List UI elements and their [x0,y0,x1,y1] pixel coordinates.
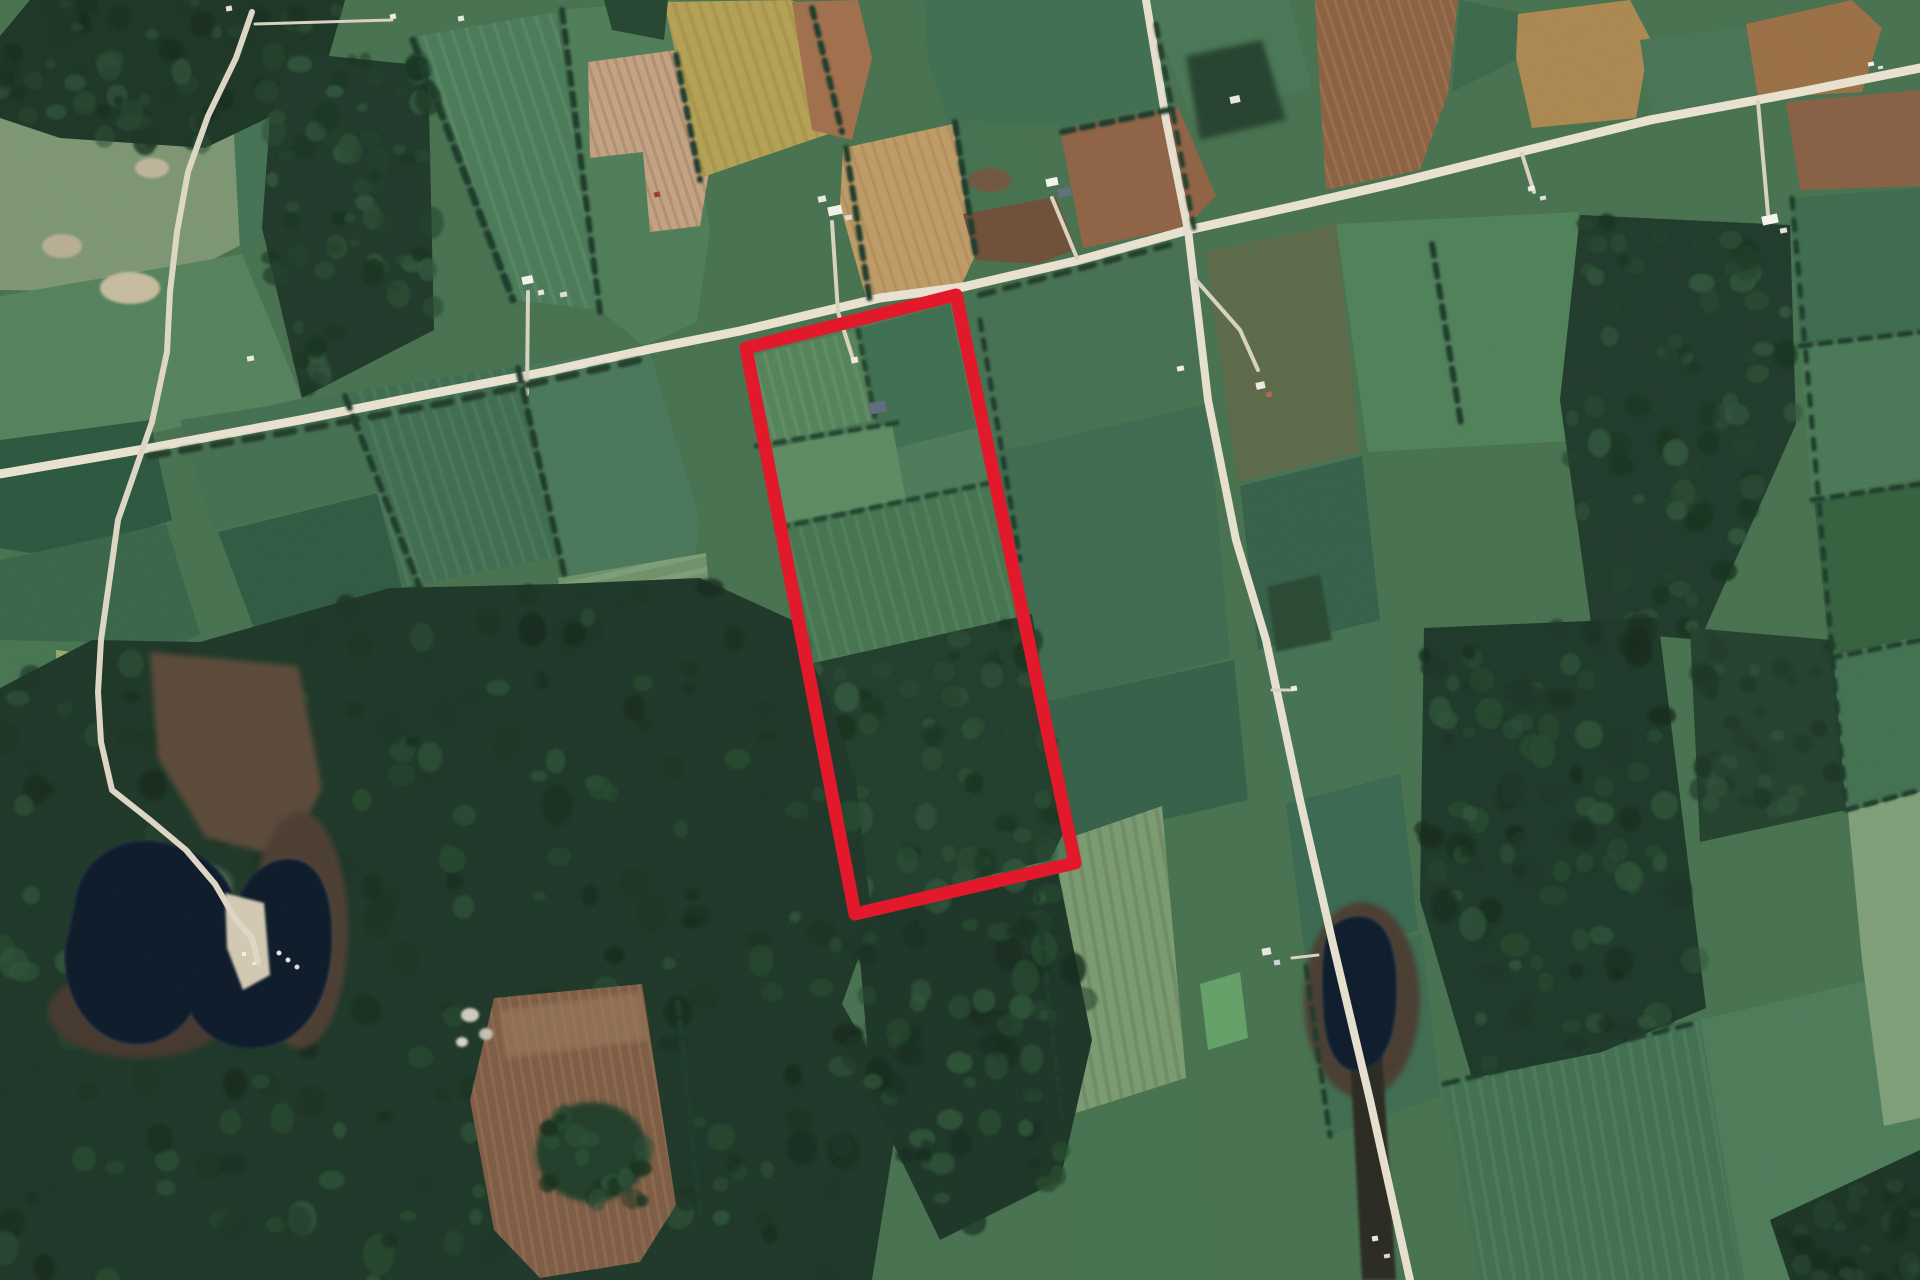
satellite-imagery [0,0,1920,1280]
satellite-map-view[interactable] [0,0,1920,1280]
image-grain [0,0,1920,1280]
